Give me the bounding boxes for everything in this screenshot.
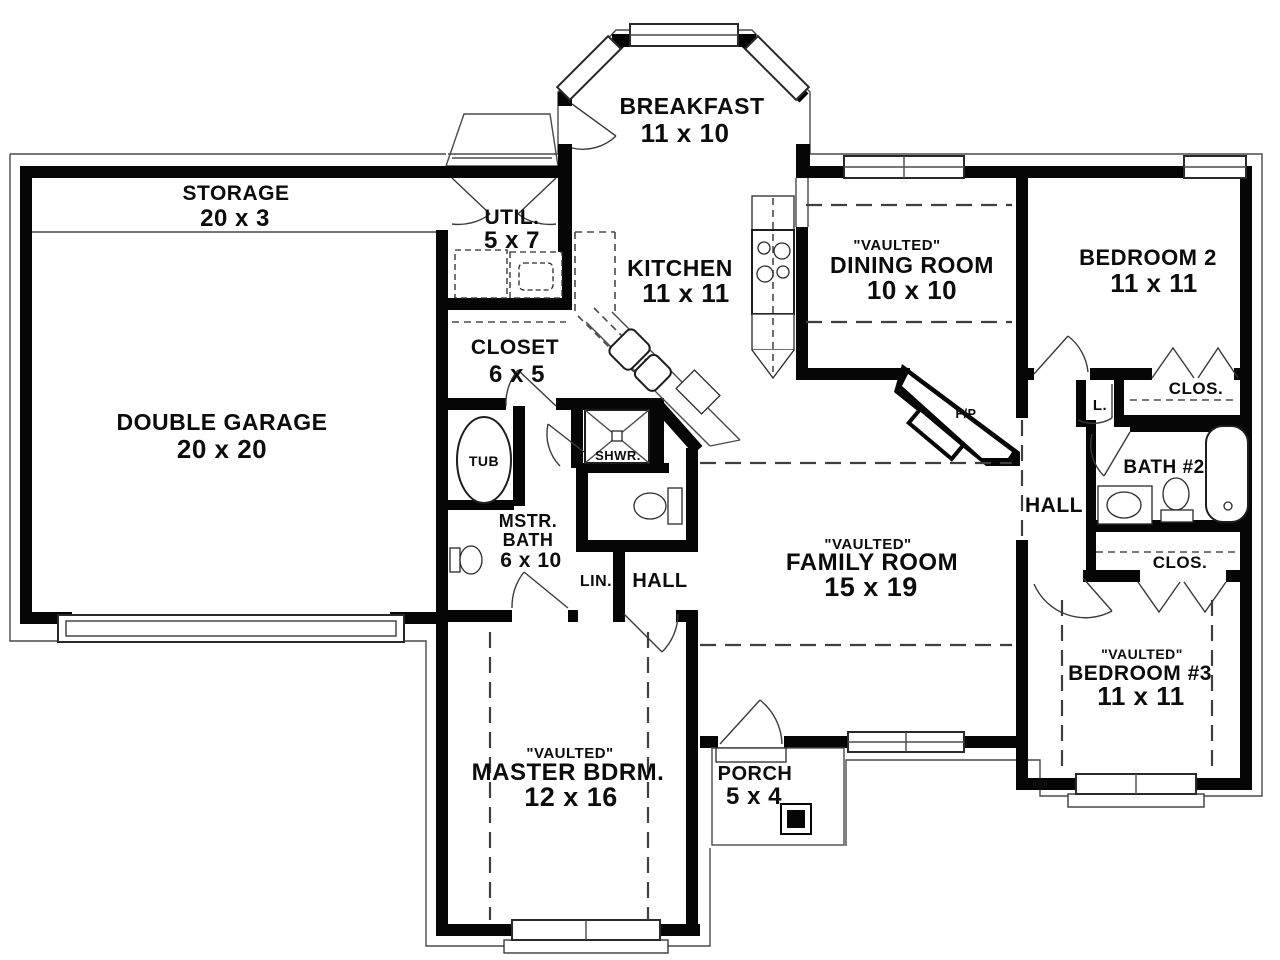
room-dims-porch: 5 x 4 — [726, 783, 782, 810]
breakfast-side-door — [572, 104, 616, 149]
room-dims-family: 15 x 19 — [824, 572, 918, 602]
room-dims-closet: 6 x 5 — [489, 361, 545, 388]
room-dims-bedroom2: 11 x 11 — [1110, 268, 1197, 298]
washer-dryer-fixture — [455, 250, 562, 298]
window — [1184, 156, 1246, 178]
room-dims-kitchen: 11 x 11 — [642, 278, 729, 308]
side-entry-stoop — [446, 114, 558, 166]
room-label-closet: CLOSET — [471, 336, 559, 359]
window — [848, 732, 964, 752]
room-label-master-bath-2: BATH — [503, 530, 554, 550]
room-label-hall-right: HALL — [1025, 494, 1083, 517]
room-labels: STORAGE 20 x 3 DOUBLE GARAGE 20 x 20 BRE… — [117, 93, 1224, 812]
porch-column-core — [787, 810, 805, 828]
room-label-garage: DOUBLE GARAGE — [117, 409, 328, 435]
walls — [20, 34, 1252, 936]
room-dims-dining: 10 x 10 — [867, 275, 957, 305]
window — [1068, 774, 1204, 807]
wc-toilet-fixture — [634, 488, 682, 524]
room-dims-master: 12 x 16 — [524, 782, 618, 812]
room-label-bath2: BATH #2 — [1123, 457, 1204, 478]
room-label-util: UTIL. — [485, 206, 540, 229]
master-bath-door — [512, 572, 568, 608]
master-toilet-fixture — [450, 546, 482, 574]
room-dims-breakfast: 11 x 10 — [641, 118, 730, 148]
window — [630, 24, 738, 46]
room-dims-master-bath: 6 x 10 — [500, 549, 561, 572]
kitchen-sink-fixture — [607, 327, 675, 395]
room-label-hall: HALL — [632, 570, 687, 592]
room-tag-bedroom3: "VAULTED" — [1101, 646, 1183, 662]
front-door — [720, 700, 782, 744]
bath2-vanity-fixture — [1098, 486, 1152, 524]
room-label-porch: PORCH — [718, 763, 793, 785]
bedroom3-door — [1034, 578, 1112, 618]
porch-step — [716, 748, 786, 762]
room-label-fireplace: F/P — [956, 407, 977, 421]
dishwasher-fixture — [676, 370, 720, 414]
window — [504, 920, 668, 953]
master-bedroom-door — [624, 614, 678, 652]
bedroom2-closet-bifold — [1152, 348, 1238, 378]
room-label-master-bath-1: MSTR. — [499, 511, 558, 531]
room-label-shower: SHWR. — [595, 448, 641, 463]
garage-door — [58, 615, 404, 642]
bedroom2-door — [1034, 336, 1088, 374]
room-label-bedroom2-closet: CLOS. — [1169, 379, 1223, 398]
room-dims-bedroom3: 11 x 11 — [1097, 681, 1184, 711]
bath2-bathtub-fixture — [1206, 426, 1248, 522]
room-label-linen: LIN. — [580, 573, 612, 590]
window — [844, 156, 964, 178]
room-label-bedroom3-closet: CLOS. — [1153, 553, 1207, 572]
window — [745, 36, 809, 100]
room-label-breakfast: BREAKFAST — [619, 93, 764, 119]
room-label-tub: TUB — [469, 453, 499, 469]
room-dims-util: 5 x 7 — [484, 227, 540, 254]
window — [557, 36, 621, 100]
interior-lines — [32, 178, 808, 446]
stove-fixture — [752, 196, 794, 378]
room-label-linen-right: L. — [1093, 397, 1107, 414]
floor-plan-drawing: STORAGE 20 x 3 DOUBLE GARAGE 20 x 20 BRE… — [0, 0, 1280, 960]
room-dims-storage: 20 x 3 — [200, 205, 270, 232]
bath2-toilet-fixture — [1161, 478, 1193, 522]
room-label-bedroom2: BEDROOM 2 — [1079, 245, 1217, 270]
room-label-storage: STORAGE — [183, 182, 290, 205]
room-dims-garage: 20 x 20 — [177, 434, 267, 464]
floor-plan-canvas: STORAGE 20 x 3 DOUBLE GARAGE 20 x 20 BRE… — [0, 0, 1280, 960]
